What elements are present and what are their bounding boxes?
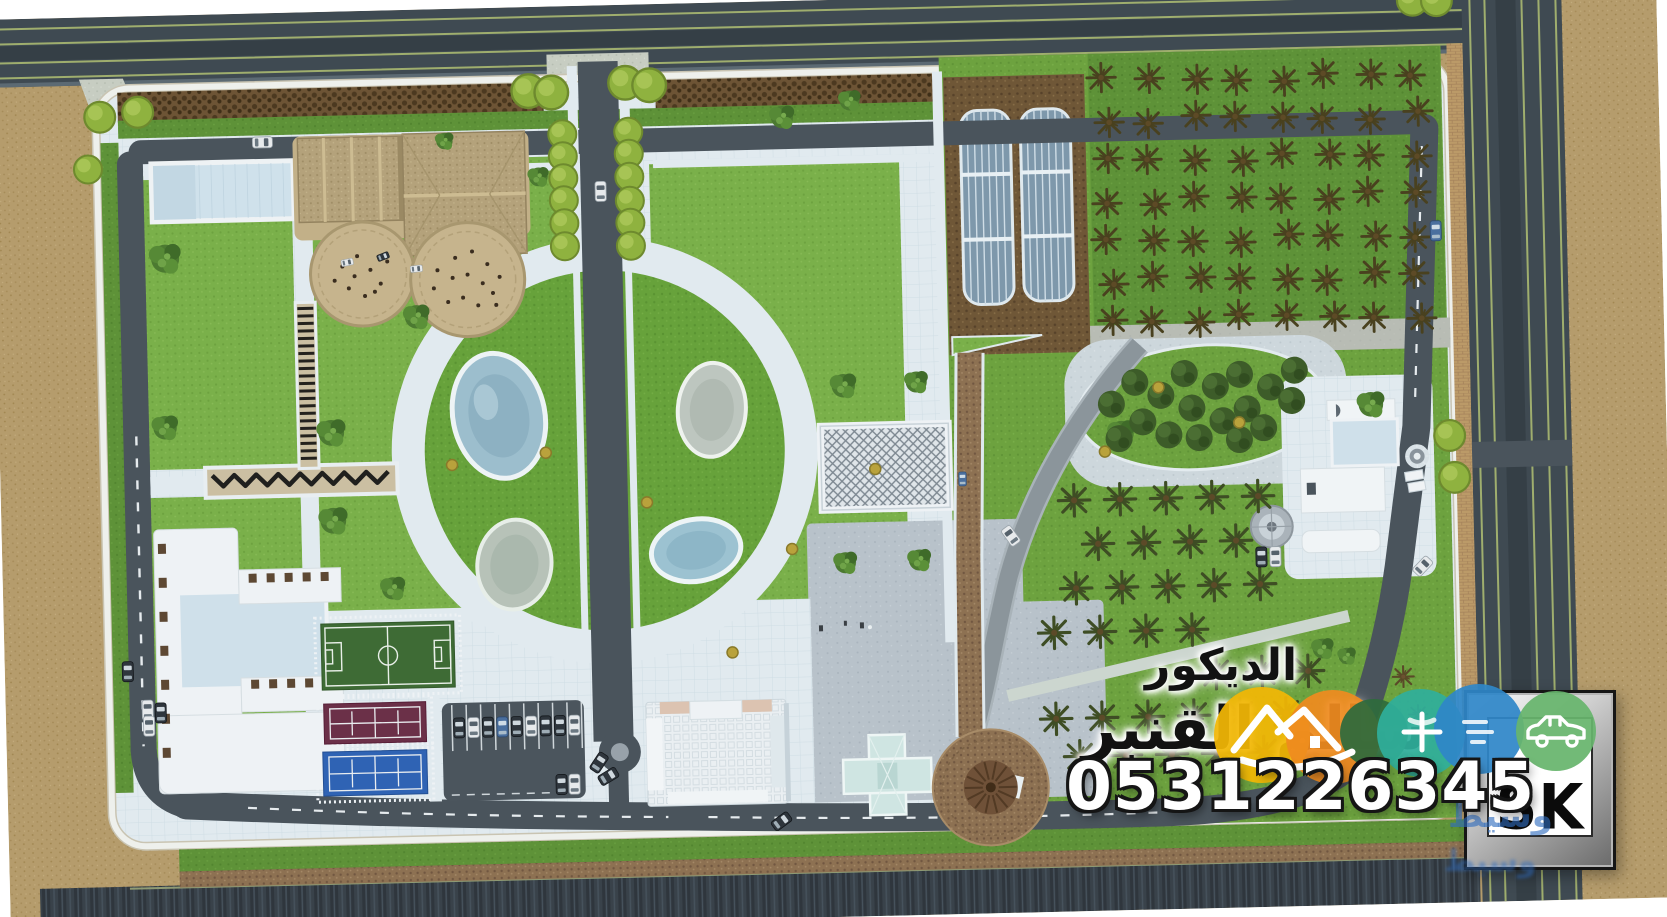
flower-bed <box>870 463 881 474</box>
palm-tree <box>1407 304 1436 333</box>
palm-tree <box>1220 102 1249 131</box>
palm-tree <box>1353 177 1382 206</box>
car <box>595 181 606 201</box>
palm-tree <box>1084 616 1116 648</box>
palm-tree <box>1152 570 1184 602</box>
palm-tree <box>1226 228 1255 257</box>
palm-tree <box>1196 481 1228 513</box>
car <box>155 703 166 723</box>
car <box>959 472 967 486</box>
gravel-walk <box>962 353 979 737</box>
palm-tree <box>1266 184 1295 213</box>
shrub <box>617 231 646 260</box>
pergola-vertical <box>295 302 319 468</box>
palm-tree <box>1185 308 1214 337</box>
car <box>569 715 580 735</box>
car <box>540 716 551 736</box>
palm-tree <box>1093 144 1122 173</box>
palm-tree <box>1244 568 1276 600</box>
shrub <box>1439 462 1471 494</box>
palm-tree <box>1174 526 1206 558</box>
palm-tree <box>1357 60 1386 89</box>
palm-tree <box>1399 259 1428 288</box>
flower-bed <box>540 447 551 458</box>
car <box>468 717 479 737</box>
flower-bed <box>446 459 457 470</box>
flower-bed <box>1153 382 1164 393</box>
car <box>569 774 580 794</box>
shrub <box>534 75 568 109</box>
palm-tree <box>1134 109 1163 138</box>
car <box>482 717 493 737</box>
palm-tree <box>1095 108 1124 137</box>
chalet-roof-1 <box>297 136 407 223</box>
palm-tree <box>1040 703 1072 735</box>
palm-tree <box>1396 61 1425 90</box>
shrub <box>122 97 154 129</box>
palm-tree <box>1224 300 1253 329</box>
palm-tree <box>1269 103 1298 132</box>
palm-tree <box>1138 262 1167 291</box>
car <box>556 774 567 794</box>
trellis-pavilion <box>820 423 950 510</box>
tennis-court-maroon <box>318 696 433 751</box>
palm-tree <box>1270 67 1299 96</box>
palm-tree <box>1220 524 1252 556</box>
palm-tree <box>1225 264 1254 293</box>
agent-watermark-text-blur: وسيط <box>1444 844 1537 879</box>
flower-bed <box>1234 417 1245 428</box>
pool-terrace <box>151 161 294 222</box>
shrub <box>632 68 666 102</box>
car <box>1270 546 1281 566</box>
palm-tree <box>1058 484 1090 516</box>
palm-tree <box>1315 140 1344 169</box>
palm-tree <box>1087 63 1116 92</box>
flower-bed <box>727 647 738 658</box>
palm-tree <box>1401 178 1430 207</box>
flower-bed <box>786 543 797 554</box>
palm-tree <box>1038 617 1070 649</box>
palm-tree <box>1242 480 1274 512</box>
palm-tree <box>1181 101 1210 130</box>
east-fountain <box>1250 505 1293 548</box>
shrub <box>1434 420 1466 452</box>
palm-tree <box>1137 307 1166 336</box>
palm-tree <box>1314 185 1343 214</box>
car <box>554 715 565 735</box>
palm-tree <box>1320 302 1349 331</box>
car <box>122 662 133 682</box>
palm-tree <box>1183 65 1212 94</box>
car <box>525 716 536 736</box>
palm-tree <box>1308 104 1337 133</box>
car <box>454 718 465 738</box>
palm-tree <box>1091 225 1120 254</box>
palm-tree <box>1403 97 1432 126</box>
palm-tree <box>1400 223 1429 252</box>
flower-bed <box>641 497 652 508</box>
car <box>143 716 154 736</box>
palm-tree <box>1132 145 1161 174</box>
livestock-yard-1 <box>309 221 415 327</box>
palm-tree <box>1186 263 1215 292</box>
palm-tree <box>1360 258 1389 287</box>
car <box>497 717 508 737</box>
palm-tree <box>1273 265 1302 294</box>
shrub <box>84 101 116 133</box>
palm-tree <box>1098 306 1127 335</box>
palm-tree <box>1179 182 1208 211</box>
palm-tree <box>1312 266 1341 295</box>
palm-tree <box>1106 571 1138 603</box>
car <box>410 265 423 273</box>
shrub <box>74 155 103 184</box>
palm-tree <box>1141 190 1170 219</box>
palm-tree <box>1274 220 1303 249</box>
palm-tree <box>1402 142 1431 171</box>
car <box>1430 221 1441 241</box>
palm-tree <box>1308 59 1337 88</box>
central-road <box>598 61 614 741</box>
palm-tree <box>1082 528 1114 560</box>
south-villa <box>646 699 791 806</box>
palm-tree <box>1272 301 1301 330</box>
palm-tree <box>1361 222 1390 251</box>
palm-tree <box>1222 66 1251 95</box>
flower-bed <box>1099 446 1110 457</box>
palm-tree <box>1104 483 1136 515</box>
palm-tree <box>1356 105 1385 134</box>
palm-tree <box>1099 270 1128 299</box>
palm-tree <box>1313 221 1342 250</box>
car <box>252 137 272 148</box>
palm-tree <box>1359 303 1388 332</box>
rendered-site-plan-image: الديكور سالم القنبر SK وسيط وسيط <box>0 0 1667 917</box>
palm-tree <box>1229 147 1258 176</box>
watermark-phone: 0531226345 <box>1066 748 1535 825</box>
palm-tree <box>1150 482 1182 514</box>
palm-tree <box>1060 572 1092 604</box>
car <box>1256 547 1267 567</box>
car <box>511 716 522 736</box>
palm-tree <box>1393 666 1414 687</box>
palm-tree <box>1198 569 1230 601</box>
palm-tree <box>1227 183 1256 212</box>
palm-tree <box>1128 527 1160 559</box>
palm-tree <box>1180 146 1209 175</box>
palm-tree <box>1135 64 1164 93</box>
shrub <box>551 232 580 261</box>
tennis-court-blue <box>317 744 434 803</box>
watermark-title: الديكور <box>1145 640 1297 691</box>
palm-tree <box>1139 226 1168 255</box>
round-hut <box>931 728 1050 847</box>
palm-tree <box>1267 139 1296 168</box>
palm-tree <box>1178 227 1207 256</box>
football-field <box>315 615 462 696</box>
palm-tree <box>1354 141 1383 170</box>
palm-tree <box>1092 189 1121 218</box>
